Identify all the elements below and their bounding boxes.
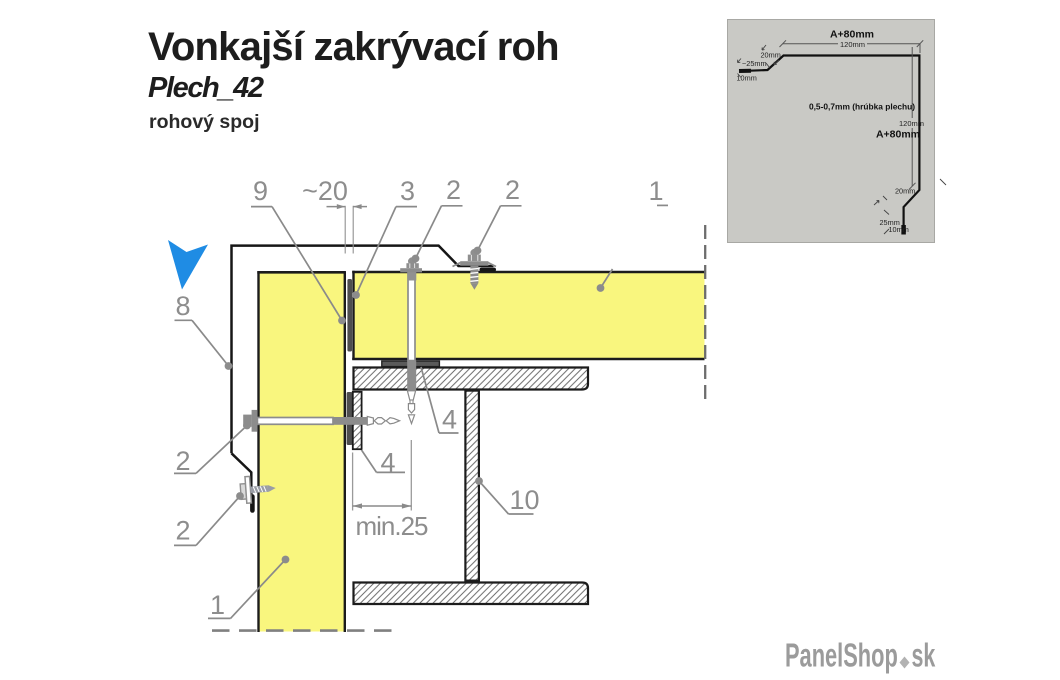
svg-text:120mm: 120mm: [899, 119, 924, 128]
svg-text:3: 3: [400, 176, 415, 206]
svg-text:min.25: min.25: [355, 511, 428, 541]
svg-text:A+80mm: A+80mm: [830, 29, 874, 41]
svg-text:20mm: 20mm: [895, 186, 915, 195]
svg-text:4: 4: [442, 405, 457, 435]
svg-text:2: 2: [175, 446, 190, 476]
svg-text:sk: sk: [912, 637, 936, 674]
svg-text:10: 10: [509, 485, 539, 515]
svg-text:PanelShop: PanelShop: [785, 636, 898, 674]
svg-text:9: 9: [253, 176, 268, 206]
svg-text:8: 8: [175, 291, 190, 321]
svg-text:Plech_42: Plech_42: [148, 72, 264, 104]
svg-text:0,5-0,7mm (hrúbka plechu): 0,5-0,7mm (hrúbka plechu): [809, 102, 915, 112]
svg-text:2: 2: [175, 516, 190, 546]
svg-text:1: 1: [648, 176, 663, 206]
svg-text:10mm: 10mm: [737, 74, 757, 83]
svg-text:2: 2: [505, 175, 520, 205]
svg-text:120mm: 120mm: [840, 40, 865, 49]
svg-text:~25mm: ~25mm: [742, 59, 767, 68]
svg-text:rohový spoj: rohový spoj: [149, 111, 260, 133]
svg-text:Vonkajší zakrývací roh: Vonkajší zakrývací roh: [148, 25, 559, 69]
svg-text:1: 1: [210, 590, 225, 620]
svg-text:~20: ~20: [302, 176, 348, 206]
svg-text:A+80mm: A+80mm: [876, 129, 920, 141]
svg-text:2: 2: [446, 175, 461, 205]
svg-text:10mm: 10mm: [889, 225, 909, 234]
